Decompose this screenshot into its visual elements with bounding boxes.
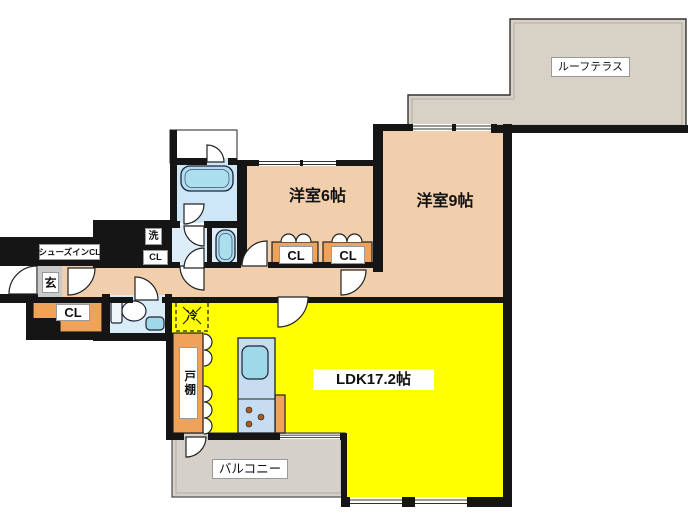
toilet-bowl: [122, 301, 146, 321]
window: [280, 434, 340, 439]
window: [415, 498, 467, 506]
roof-terrace-label: ルーフテラス: [551, 57, 630, 77]
bedroom6-closet2-label: CL: [331, 246, 365, 264]
balcony-label: バルコニー: [212, 459, 288, 479]
wall-segment: [452, 124, 456, 131]
wall-segment: [341, 433, 347, 497]
wall-segment: [373, 124, 413, 131]
wall-segment: [300, 160, 303, 166]
wall-segment: [491, 125, 688, 133]
bathtub: [181, 166, 233, 191]
stove-burner: [258, 414, 264, 420]
wall-segment: [237, 160, 259, 166]
wall-segment: [93, 333, 172, 341]
window: [303, 160, 336, 166]
window: [259, 160, 300, 166]
wall-segment: [402, 497, 415, 507]
vanity-sink: [216, 230, 235, 263]
wall-segment: [336, 160, 373, 166]
window: [413, 124, 452, 131]
front-door-swing: [9, 266, 37, 294]
wall-segment: [166, 333, 173, 433]
wall-segment: [467, 497, 512, 507]
roof-terrace-area: [408, 19, 686, 129]
wall-segment: [340, 433, 347, 440]
wall-segment: [166, 433, 184, 440]
hall-closet-label: CL: [56, 304, 90, 321]
wall-segment: [170, 130, 177, 223]
wall-segment: [228, 158, 237, 165]
wall-segment: [204, 262, 241, 268]
refrigerator-label: 冷: [181, 305, 203, 327]
kitchen-sink: [242, 346, 268, 379]
bedroom6-closet1-label: CL: [279, 246, 313, 264]
window: [456, 124, 491, 131]
bifold-door-icon: [204, 386, 212, 434]
cupboard-label: 戸棚: [179, 347, 198, 419]
ldk-label: LDK17.2帖: [313, 369, 434, 390]
kitchen-side-cabinet: [275, 395, 285, 433]
wall-segment: [341, 497, 350, 507]
wall-segment: [170, 158, 207, 165]
washer-label: 洗: [145, 228, 162, 245]
stove-burner: [246, 407, 252, 413]
wall-segment: [503, 124, 512, 507]
wall-segment: [207, 227, 212, 268]
laundry-closet-label: CL: [143, 250, 168, 265]
toilet-mat: [146, 317, 164, 330]
wall-segment: [373, 128, 383, 272]
wall-segment: [204, 221, 240, 228]
wall-segment: [26, 297, 133, 303]
western-room9-label: 洋室9帖: [400, 191, 490, 213]
wall-segment: [208, 433, 280, 440]
western-room6-label: 洋室6帖: [270, 186, 365, 208]
floor-plan: ルーフテラス 洋室6帖 洋室9帖 LDK17.2帖 バルコニー シューズインCL…: [0, 0, 700, 525]
roof-terrace-floor: [408, 19, 686, 129]
hallway-floor: [62, 266, 503, 297]
wall-segment: [237, 160, 247, 265]
kitchen-counter: [238, 338, 275, 433]
window: [350, 498, 402, 506]
entrance-label: 玄: [42, 272, 59, 293]
wall-segment: [308, 297, 512, 303]
shoes-in-closet-label: シューズインCL: [39, 244, 100, 260]
stove-burner: [246, 421, 252, 427]
